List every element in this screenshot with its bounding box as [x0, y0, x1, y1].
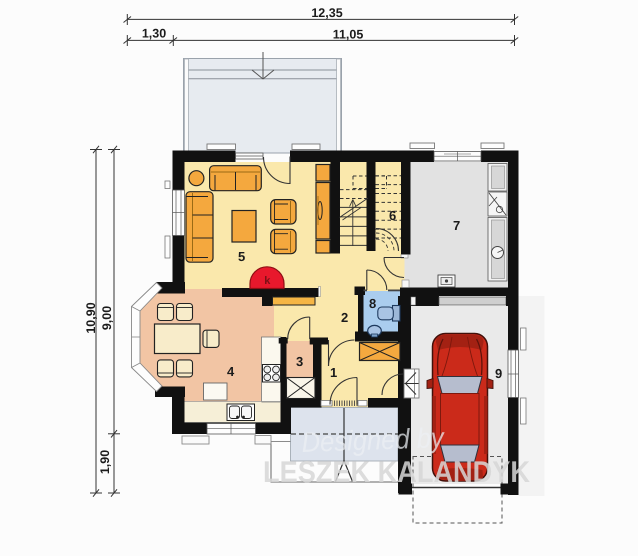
svg-text:10,90: 10,90	[84, 302, 98, 333]
svg-text:7: 7	[453, 218, 460, 233]
svg-text:LESZEK KALANDYK: LESZEK KALANDYK	[263, 456, 530, 489]
svg-text:9: 9	[495, 366, 502, 381]
svg-text:k: k	[264, 275, 271, 287]
svg-text:4: 4	[227, 364, 235, 379]
svg-text:2: 2	[341, 310, 348, 325]
svg-text:1,90: 1,90	[98, 450, 112, 474]
svg-text:11,05: 11,05	[333, 28, 364, 42]
svg-text:8: 8	[369, 296, 376, 311]
svg-text:3: 3	[296, 354, 303, 369]
svg-text:1,30: 1,30	[142, 27, 166, 41]
svg-text:6: 6	[389, 208, 396, 223]
svg-text:9,00: 9,00	[100, 306, 114, 330]
svg-text:Designed by: Designed by	[301, 422, 446, 458]
svg-text:12,35: 12,35	[311, 6, 342, 20]
svg-text:5: 5	[238, 249, 245, 264]
svg-text:1: 1	[330, 365, 337, 380]
